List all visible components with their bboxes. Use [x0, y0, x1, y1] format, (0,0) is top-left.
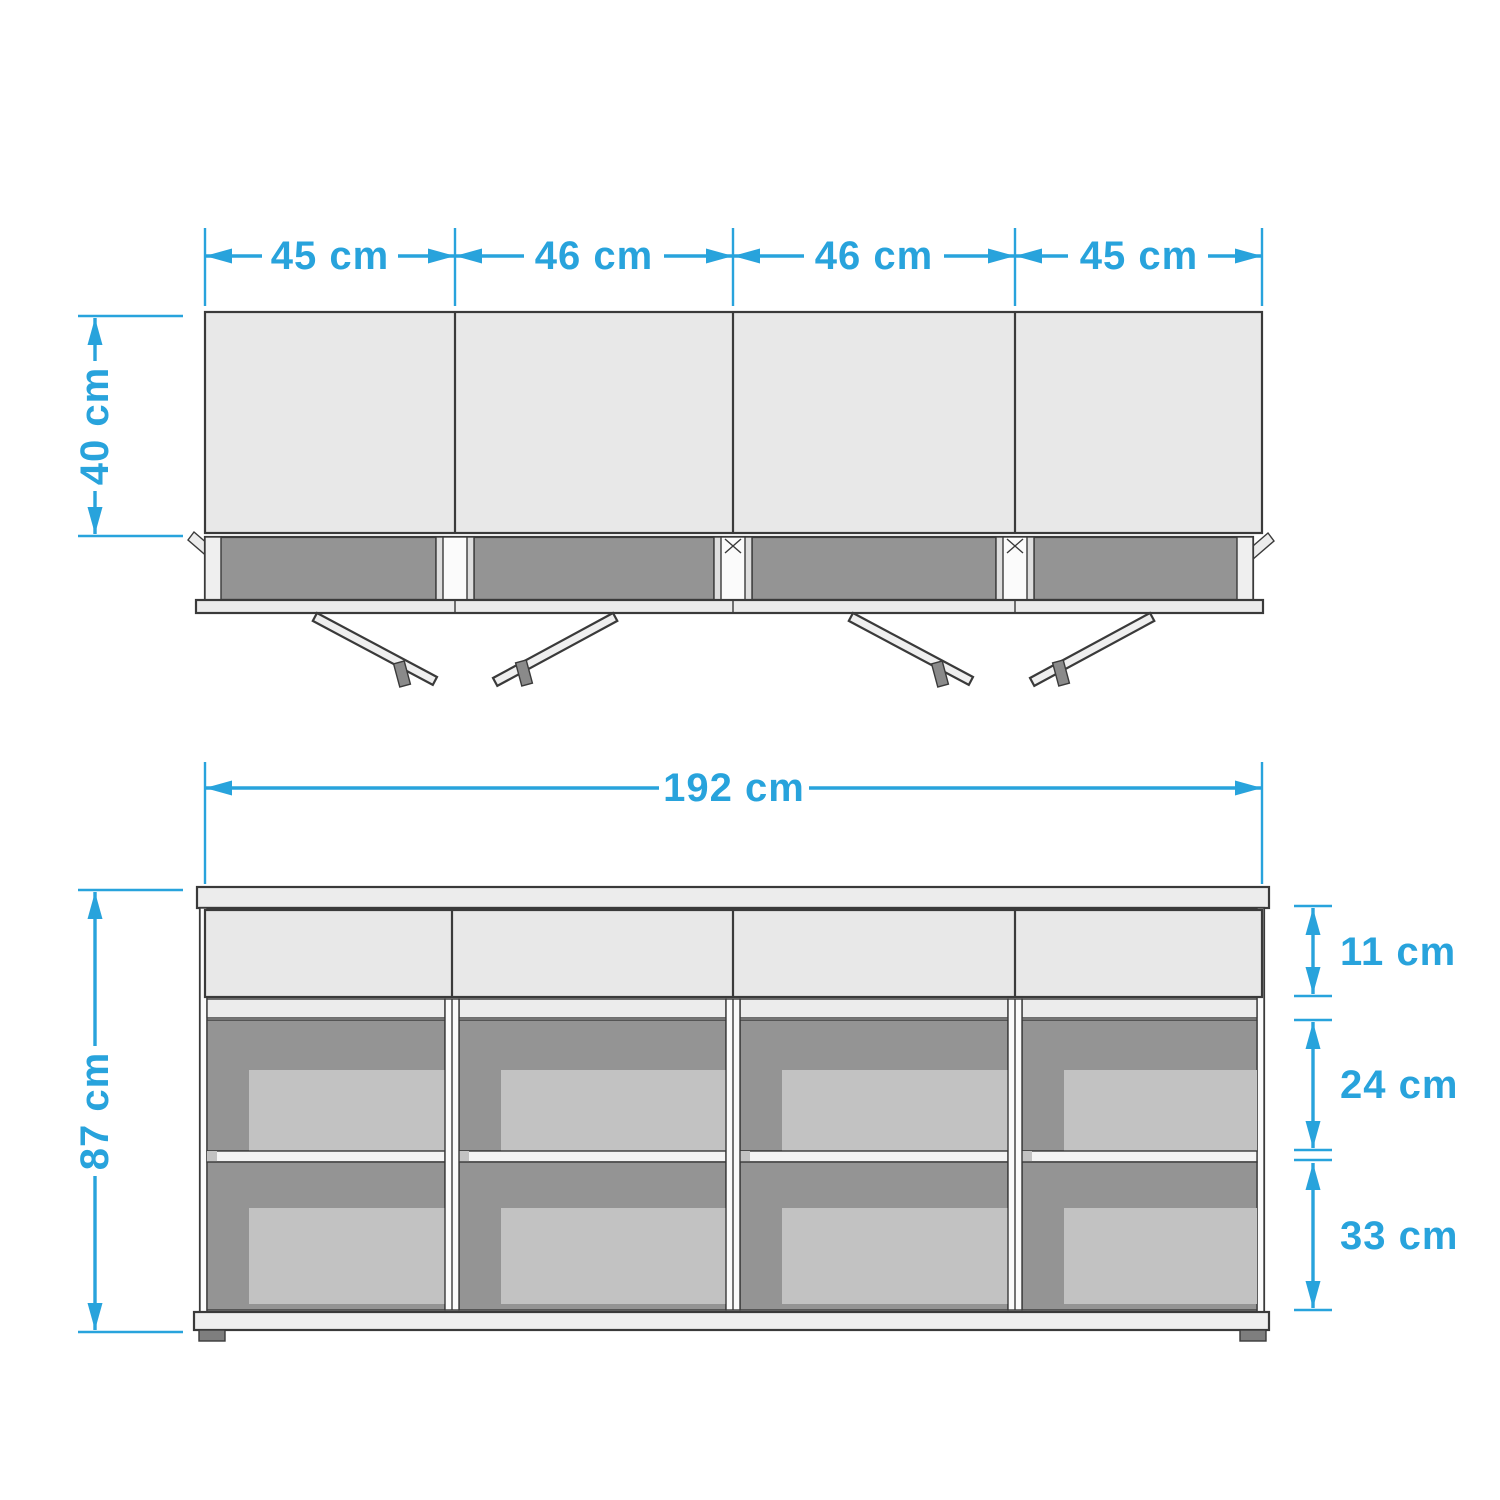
foot-right — [1240, 1330, 1266, 1341]
base-board — [194, 1312, 1269, 1330]
furniture-dimension-diagram: 45 cm 46 cm 46 cm 45 cm 40 cm — [0, 0, 1500, 1500]
foot-left — [199, 1330, 225, 1341]
front-height-dimension: 87 cm — [73, 890, 183, 1332]
open-doors — [313, 613, 1155, 687]
dim-label-lower-compartment: 33 cm — [1340, 1214, 1458, 1258]
module-divider-1 — [436, 537, 474, 600]
dim-label-total-height: 87 cm — [73, 1052, 117, 1170]
open-door-2 — [493, 613, 617, 686]
depth-dimension: 40 cm — [73, 316, 183, 536]
front-width-dimension: 192 cm — [205, 762, 1262, 884]
top-view: 45 cm 46 cm 46 cm 45 cm 40 cm — [73, 228, 1274, 687]
dim-label-door1-width: 45 cm — [271, 234, 389, 278]
left-side-wall — [205, 537, 221, 600]
front-edge-strip — [196, 600, 1263, 613]
diagram-canvas: 45 cm 46 cm 46 cm 45 cm 40 cm — [0, 0, 1500, 1500]
front-view: 192 cm 87 cm — [73, 762, 1458, 1341]
top-board — [197, 887, 1269, 908]
open-interior-band — [205, 537, 1253, 600]
module-divider-3 — [996, 537, 1034, 600]
dim-label-door4-width: 45 cm — [1080, 234, 1198, 278]
dim-label-upper-compartment: 24 cm — [1340, 1063, 1458, 1107]
cabinet-top-panels — [205, 312, 1262, 533]
dim-label-door2-width: 46 cm — [535, 234, 653, 278]
dim-label-total-width: 192 cm — [663, 766, 805, 810]
module-divider-2 — [714, 537, 752, 600]
open-door-1 — [313, 613, 437, 685]
dim-label-depth: 40 cm — [73, 367, 117, 485]
sideboard-body — [194, 887, 1269, 1341]
drawer-row — [205, 910, 1262, 997]
open-door-4 — [1030, 613, 1154, 686]
open-door-3 — [849, 613, 973, 685]
front-section-dimensions: 11 cm 24 cm 33 cm — [1294, 906, 1458, 1310]
dim-label-door3-width: 46 cm — [815, 234, 933, 278]
dim-label-drawer-height: 11 cm — [1340, 930, 1456, 974]
right-side-wall — [1237, 537, 1253, 600]
